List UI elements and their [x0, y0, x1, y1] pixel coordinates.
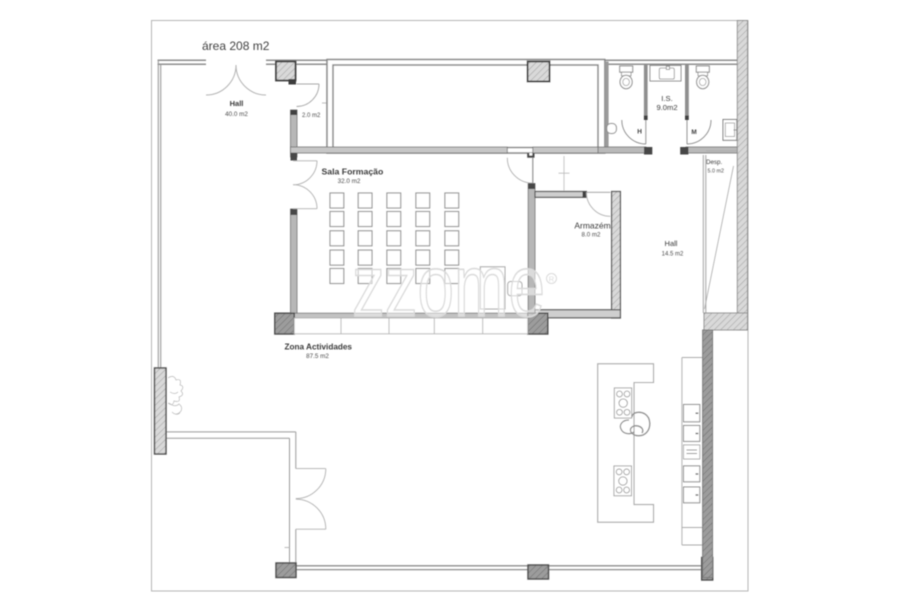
- svg-text:Sala Formação: Sala Formação: [322, 167, 384, 177]
- svg-text:área 208 m2: área 208 m2: [202, 39, 270, 53]
- svg-text:14.5 m2: 14.5 m2: [662, 252, 684, 258]
- svg-text:Desp.: Desp.: [706, 159, 722, 166]
- svg-text:9.0m2: 9.0m2: [656, 103, 677, 112]
- svg-text:5.0 m2: 5.0 m2: [708, 169, 724, 175]
- svg-text:8.0 m2: 8.0 m2: [582, 232, 601, 239]
- svg-text:32.0 m2: 32.0 m2: [338, 178, 361, 185]
- svg-text:zzome: zzome: [352, 236, 545, 335]
- svg-text:40.0 m2: 40.0 m2: [225, 111, 248, 118]
- svg-text:2.0 m2: 2.0 m2: [302, 113, 321, 119]
- svg-text:Armazém: Armazém: [574, 221, 610, 231]
- svg-text:Hall: Hall: [665, 239, 678, 248]
- svg-text:I.S.: I.S.: [661, 94, 672, 103]
- svg-text:H: H: [637, 129, 642, 136]
- svg-text:R: R: [549, 275, 555, 284]
- svg-text:M: M: [691, 129, 696, 136]
- svg-text:Zona Actividades: Zona Actividades: [285, 343, 353, 352]
- svg-text:Hall: Hall: [230, 99, 244, 108]
- svg-text:87.5 m2: 87.5 m2: [306, 353, 329, 360]
